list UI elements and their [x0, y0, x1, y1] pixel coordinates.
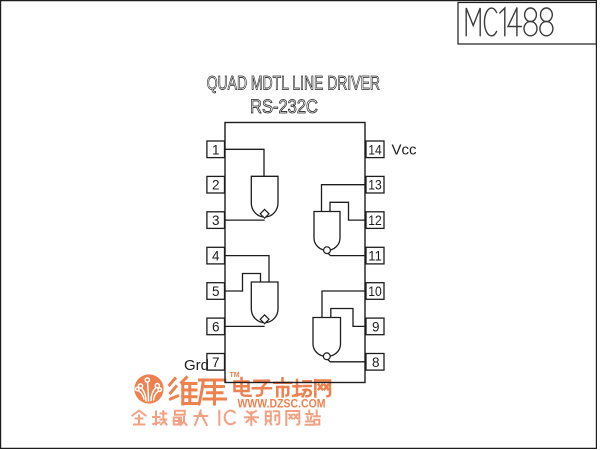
svg-text:9: 9 — [372, 319, 380, 334]
svg-text:5: 5 — [212, 284, 220, 299]
svg-text:10: 10 — [368, 284, 382, 299]
svg-text:8: 8 — [372, 355, 380, 370]
svg-text:1: 1 — [212, 142, 220, 157]
svg-text:WWW.DZSC.COM: WWW.DZSC.COM — [238, 398, 326, 410]
svg-text:3: 3 — [212, 213, 220, 228]
svg-text:12: 12 — [368, 213, 382, 228]
svg-text:6: 6 — [212, 319, 220, 334]
svg-text:2: 2 — [212, 178, 220, 193]
svg-text:11: 11 — [368, 249, 382, 264]
svg-text:Grd: Grd — [184, 357, 209, 374]
svg-text:Vcc: Vcc — [392, 142, 418, 159]
svg-text:13: 13 — [368, 178, 382, 193]
svg-text:4: 4 — [212, 249, 220, 264]
svg-text:RS-232C: RS-232C — [250, 96, 318, 118]
svg-text:7: 7 — [212, 355, 220, 370]
svg-text:TM: TM — [230, 372, 240, 379]
svg-text:QUAD MDTL LINE DRIVER: QUAD MDTL LINE DRIVER — [207, 73, 380, 95]
svg-text:14: 14 — [368, 142, 382, 157]
